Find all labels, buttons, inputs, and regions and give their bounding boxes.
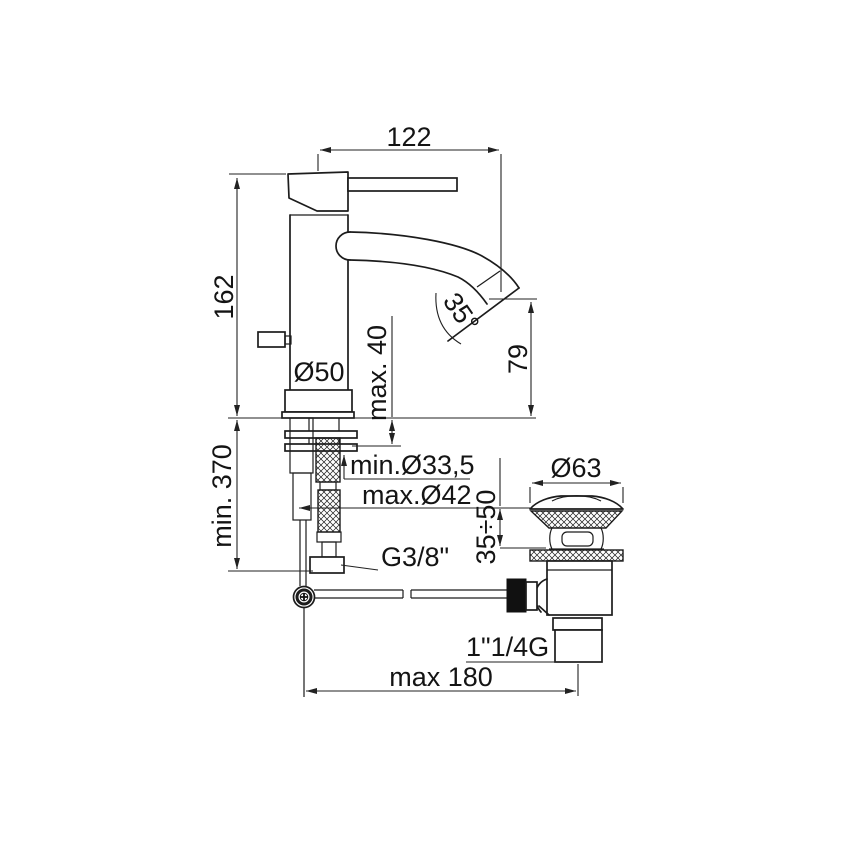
rod-adjuster-knurl (507, 579, 526, 612)
base-flange (285, 390, 352, 412)
waste-outlet-ring (553, 618, 602, 630)
dim-g38-label: G3/8" (381, 542, 449, 572)
dim-63-label: Ø63 (550, 453, 601, 483)
flex-hose-upper (316, 438, 340, 482)
dim-180-label: max 180 (389, 662, 493, 692)
flex-hose-lower (318, 490, 340, 532)
technical-drawing-page: 122 162 35° max. 40 79 Ø50 min. 370 min.… (0, 0, 868, 868)
waste-outlet-thread (555, 630, 602, 662)
base-plate (282, 412, 354, 418)
dim-3550-label: 35÷50 (471, 490, 501, 565)
hose-nut-g38 (310, 557, 344, 573)
faucet-dimension-drawing: 122 162 35° max. 40 79 Ø50 min. 370 min.… (0, 0, 868, 868)
waste-lower-flange (530, 550, 623, 561)
lock-washer-upper (285, 431, 357, 438)
dim-40-label: max. 40 (362, 325, 392, 421)
dim-42-label: max.Ø42 (362, 480, 472, 510)
dim-162-label: 162 (209, 274, 239, 319)
dim-79-label: 79 (503, 344, 533, 374)
dim-335-label: min.Ø33,5 (350, 450, 475, 480)
lever-handle (348, 178, 457, 191)
dim-122-label: 122 (386, 122, 431, 152)
dim-50-label: Ø50 (293, 357, 344, 387)
rod-adjuster-collar (526, 582, 537, 610)
waste-body (547, 561, 612, 615)
dim-370-label: min. 370 (207, 444, 237, 548)
dim-114g-label: 1"1/4G (466, 632, 549, 662)
side-knob (258, 332, 285, 347)
page-background (0, 0, 868, 868)
